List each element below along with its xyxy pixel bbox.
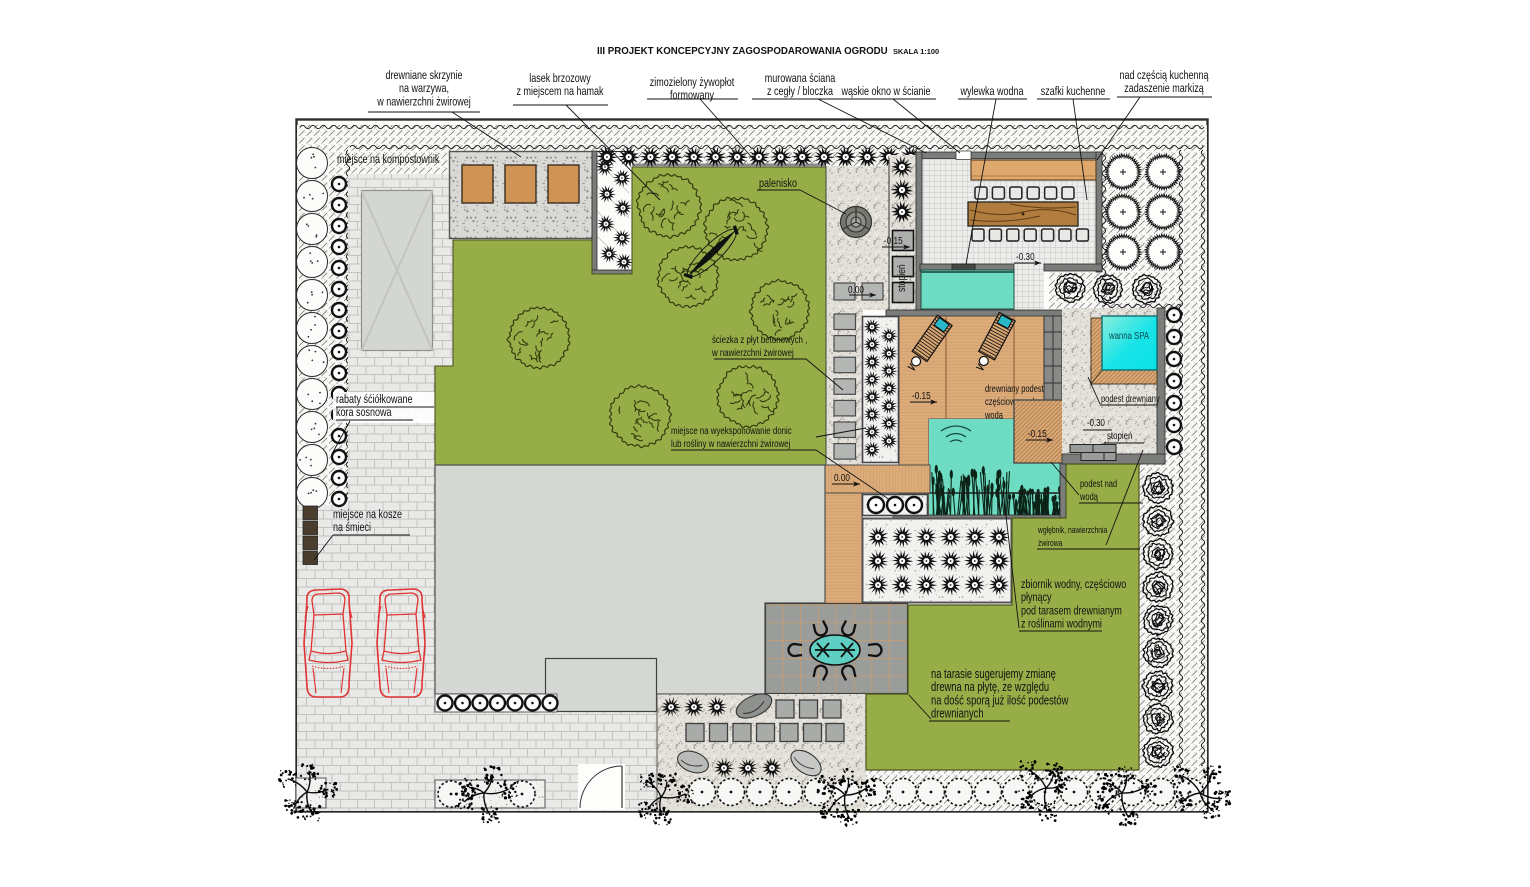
svg-text:SKALA 1:100: SKALA 1:100 [893,47,939,56]
svg-text:wylewka wodna: wylewka wodna [960,85,1024,99]
svg-text:stopień: stopień [896,264,908,292]
svg-text:wanna SPA: wanna SPA [1108,330,1149,341]
svg-text:miejsce na kompostownik: miejsce na kompostownik [337,153,440,167]
svg-text:palenisko: palenisko [759,177,797,191]
svg-text:ściezka z płyt betonowych ,w n: ściezka z płyt betonowych ,w nawierzchni… [711,334,807,359]
svg-text:-0.30: -0.30 [1016,250,1035,262]
svg-text:murowana ścianaz cegły / blocz: murowana ścianaz cegły / bloczka [765,72,836,99]
svg-text:III PROJEKT KONCEPCYJNY ZAGOSP: III PROJEKT KONCEPCYJNY ZAGOSPODAROWANIA… [597,46,888,57]
svg-text:szafki kuchenne: szafki kuchenne [1041,85,1106,99]
svg-text:stopień: stopień [1107,430,1132,441]
svg-text:-0.30: -0.30 [1087,417,1105,428]
svg-text:-0.15: -0.15 [912,389,931,401]
svg-text:0.00: 0.00 [834,471,850,483]
svg-text:0.00: 0.00 [848,283,864,295]
svg-text:-0.15: -0.15 [1028,427,1047,439]
svg-text:nad częścią kuchennązadaszenie: nad częścią kuchennązadaszenie markizą [1120,69,1209,96]
svg-text:wąskie okno w ścianie: wąskie okno w ścianie [841,85,931,99]
svg-text:podest drewniany: podest drewniany [1101,393,1160,404]
svg-text:-0.15: -0.15 [884,234,903,246]
svg-text:miejsce na wyeksponowanie doni: miejsce na wyeksponowanie doniclub rośli… [671,425,792,450]
